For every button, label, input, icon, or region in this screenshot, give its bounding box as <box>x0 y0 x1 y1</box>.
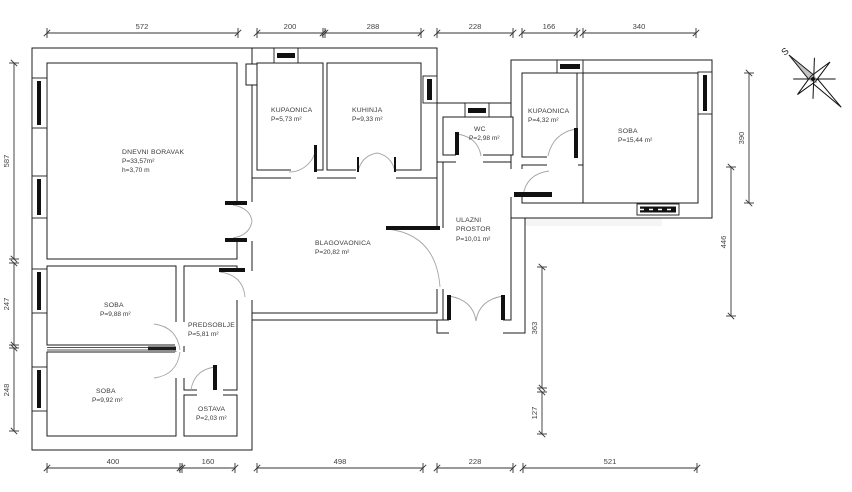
svg-text:P=2,98 m²: P=2,98 m² <box>469 135 500 142</box>
dim-top-1: 572 <box>136 22 149 31</box>
room-kupaonica-2 <box>522 73 577 157</box>
dim-right-2: 446 <box>719 236 728 249</box>
compass-north-icon: S <box>773 38 852 123</box>
svg-text:PROSTOR: PROSTOR <box>456 226 491 233</box>
dim-top-4: 228 <box>469 22 482 31</box>
svg-text:P=9,92 m²: P=9,92 m² <box>92 397 123 404</box>
svg-text:P=9,88 m²: P=9,88 m² <box>100 311 131 318</box>
svg-text:P=10,01 m²: P=10,01 m² <box>456 236 491 243</box>
dim-right-1: 390 <box>737 132 746 145</box>
dim-middle-2: 127 <box>530 407 539 420</box>
svg-text:P=4,32 m²: P=4,32 m² <box>528 117 559 124</box>
dim-bottom-5: 521 <box>604 457 617 466</box>
svg-text:P=15,44 m²: P=15,44 m² <box>618 137 653 144</box>
vent-window-icon <box>637 204 679 215</box>
dim-top-2: 200 <box>284 22 297 31</box>
dim-bottom-3: 498 <box>334 457 347 466</box>
dim-middle-1: 363 <box>530 322 539 335</box>
svg-text:KUPAONICA: KUPAONICA <box>271 107 313 114</box>
svg-text:P=33,57m²: P=33,57m² <box>122 158 155 165</box>
svg-text:P=20,82 m²: P=20,82 m² <box>315 249 350 256</box>
svg-text:BLAGOVAONICA: BLAGOVAONICA <box>315 240 371 247</box>
shaft <box>246 64 257 85</box>
dim-left-3: 248 <box>2 384 11 397</box>
dim-bottom-1: 400 <box>107 457 120 466</box>
svg-text:KUHINJA: KUHINJA <box>352 107 383 114</box>
svg-text:P=9,33 m²: P=9,33 m² <box>352 116 383 123</box>
dim-top-6: 340 <box>633 22 646 31</box>
dim-top-3: 288 <box>367 22 380 31</box>
svg-text:SOBA: SOBA <box>96 388 116 395</box>
floor-plan-page: 572 200 288 228 166 340 400 160 498 228 … <box>0 0 852 492</box>
dim-bottom-4: 228 <box>469 457 482 466</box>
svg-text:P=5,81 m²: P=5,81 m² <box>188 331 219 338</box>
room-corridor <box>522 165 583 203</box>
dim-bottom-2: 160 <box>202 457 215 466</box>
svg-text:KUPAONICA: KUPAONICA <box>528 108 570 115</box>
floor-plan-drawing: 572 200 288 228 166 340 400 160 498 228 … <box>0 0 852 492</box>
svg-text:P=2,03 m²: P=2,03 m² <box>196 415 227 422</box>
dim-top-5: 166 <box>543 22 556 31</box>
dim-left-2: 247 <box>2 298 11 311</box>
svg-text:WC: WC <box>474 126 486 133</box>
svg-text:PREDSOBLJE: PREDSOBLJE <box>188 322 235 329</box>
svg-text:OSTAVA: OSTAVA <box>198 406 226 413</box>
svg-text:ULAZNI: ULAZNI <box>456 217 481 224</box>
svg-text:DNEVNI BORAVAK: DNEVNI BORAVAK <box>122 149 184 156</box>
svg-text:SOBA: SOBA <box>618 128 638 135</box>
svg-text:SOBA: SOBA <box>104 302 124 309</box>
dim-left-1: 587 <box>2 155 11 168</box>
svg-text:h=3,70 m: h=3,70 m <box>122 167 150 174</box>
svg-text:P=5,73 m²: P=5,73 m² <box>271 116 302 123</box>
